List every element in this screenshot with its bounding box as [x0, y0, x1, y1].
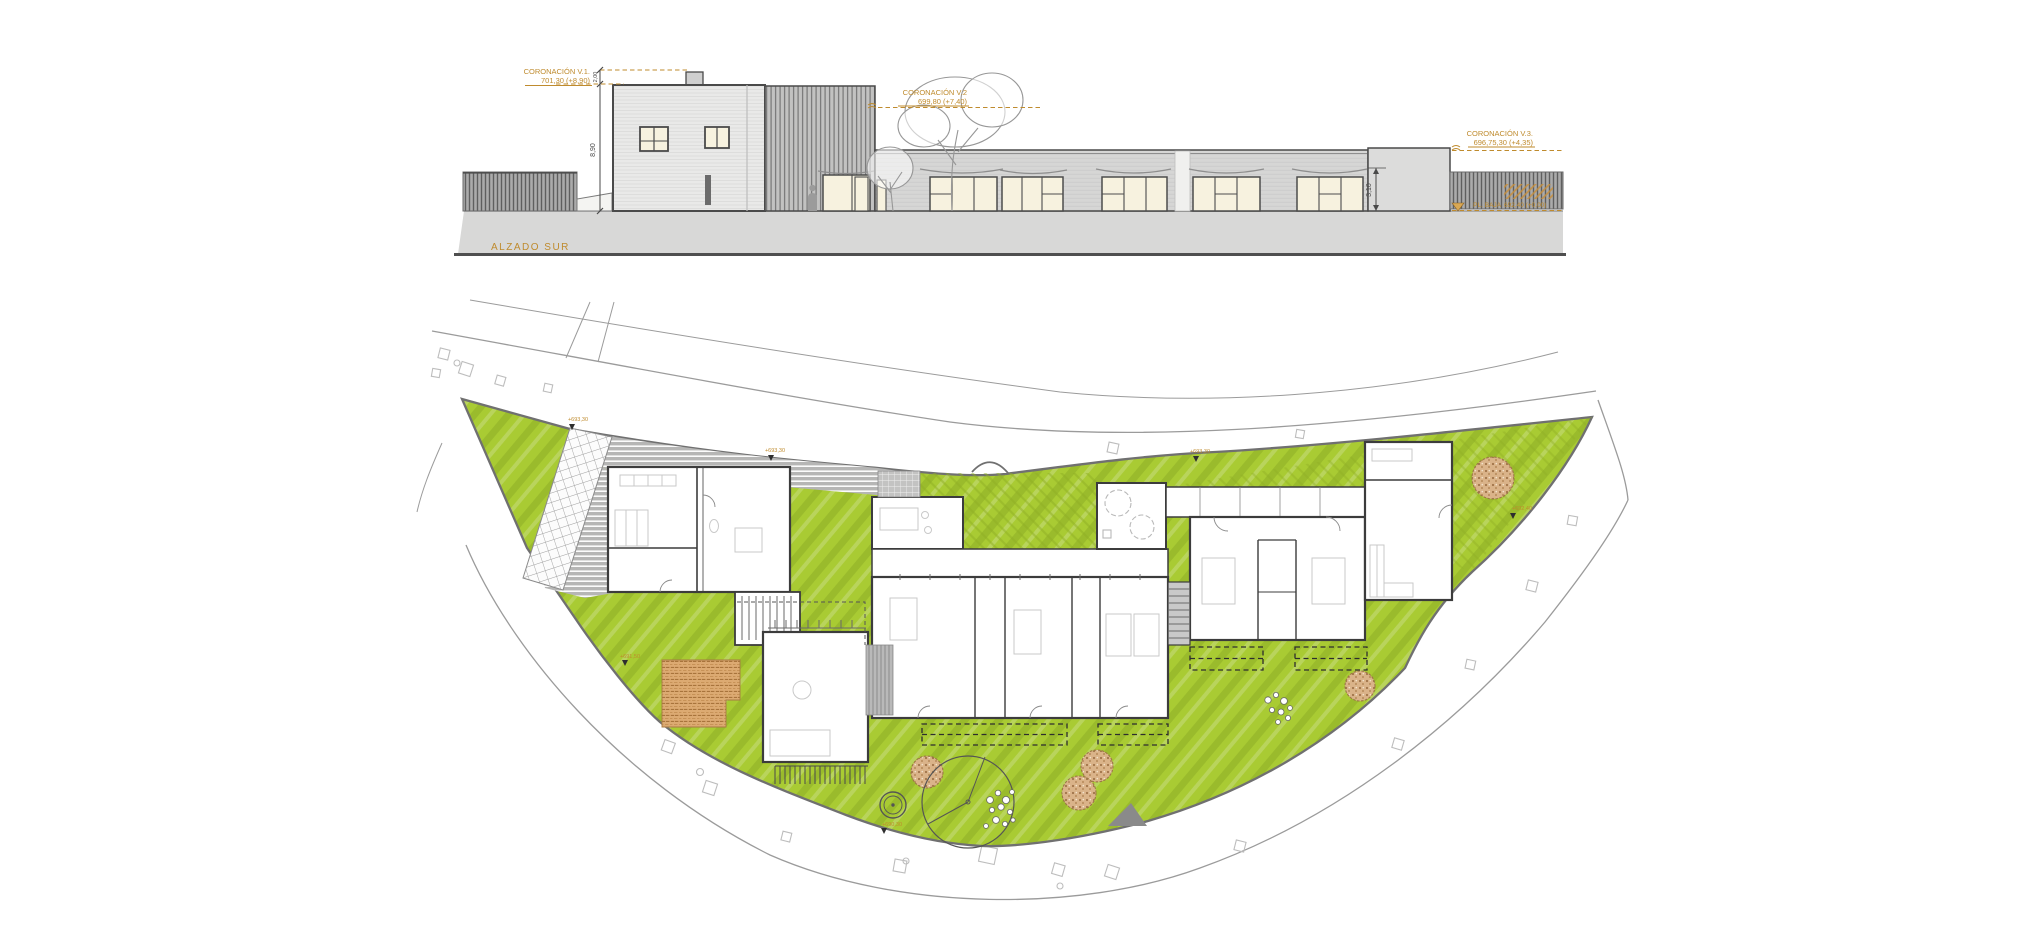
dim-3-10-label: 3,10 — [1366, 183, 1373, 197]
paved-deck — [878, 471, 920, 497]
spot-value: +693,30 — [1190, 449, 1210, 455]
spot-value: +693,30 — [765, 448, 785, 454]
side-deck-hatch — [866, 645, 893, 715]
elevation-title: ALZADO SUR — [491, 242, 570, 253]
site-plan: +693,30 +693,30 +693,30 +692,40 +691,50 … — [417, 300, 1628, 900]
spot-value: +691,50 — [620, 654, 640, 660]
level-v2-name: CORONACIÓN V.2 — [903, 88, 967, 97]
boundary-bay-bump — [972, 462, 1008, 473]
building-right-wing — [1365, 442, 1452, 600]
building-left-house — [608, 467, 790, 592]
main-house-volume — [613, 72, 765, 211]
ground-strip — [454, 211, 1566, 255]
level-annotation-v3: CORONACIÓN V.3. 696,75,30 (+4,35) — [1452, 129, 1562, 151]
house-window-left — [640, 127, 668, 151]
building-bedroom-wing-center — [872, 574, 1168, 718]
house-window-right — [705, 127, 729, 148]
patio-with-trees — [1097, 483, 1166, 549]
level-v3-name: CORONACIÓN V.3. — [1467, 129, 1533, 138]
corridor — [872, 549, 1168, 577]
slit-window — [705, 175, 711, 205]
level-v3-value: 696,75,30 (+4,35) — [1474, 138, 1534, 147]
patio-gap — [1175, 151, 1190, 211]
spot-value: +693,30 — [568, 417, 588, 423]
building-office — [872, 497, 963, 549]
walkway-roof — [1166, 487, 1365, 517]
orange-hatch-patch — [1504, 184, 1553, 199]
stairs-right — [1168, 582, 1190, 645]
spot-value: +690,30 — [882, 822, 902, 828]
dim-8-90-label: 8,90 — [590, 143, 597, 157]
pl-baja-name: PL. BAJA — [1473, 202, 1501, 209]
left-boundary-fence — [463, 172, 612, 211]
chimney — [686, 72, 703, 85]
pl-baja-value: 692,40 (+0,00) — [1504, 202, 1546, 209]
level-v2-value: 699,80 (+7,40) — [918, 97, 967, 106]
blueprint-sheet: CORONACIÓN V.1. 701,30 (+8,90) 2,00 8,90… — [0, 0, 2027, 943]
dim-2-00-label: 2,00 — [593, 72, 599, 83]
right-volume — [1368, 148, 1450, 211]
spot-value: +692,40 — [1512, 506, 1532, 512]
elevation-drawing: CORONACIÓN V.1. 701,30 (+8,90) 2,00 8,90… — [454, 67, 1566, 255]
drawing-canvas: CORONACIÓN V.1. 701,30 (+8,90) 2,00 8,90… — [0, 0, 2027, 943]
building-bedroom-block-right — [1190, 517, 1365, 640]
young-tree-rings — [880, 792, 906, 818]
level-v1-name: CORONACIÓN V.1. — [524, 67, 590, 76]
